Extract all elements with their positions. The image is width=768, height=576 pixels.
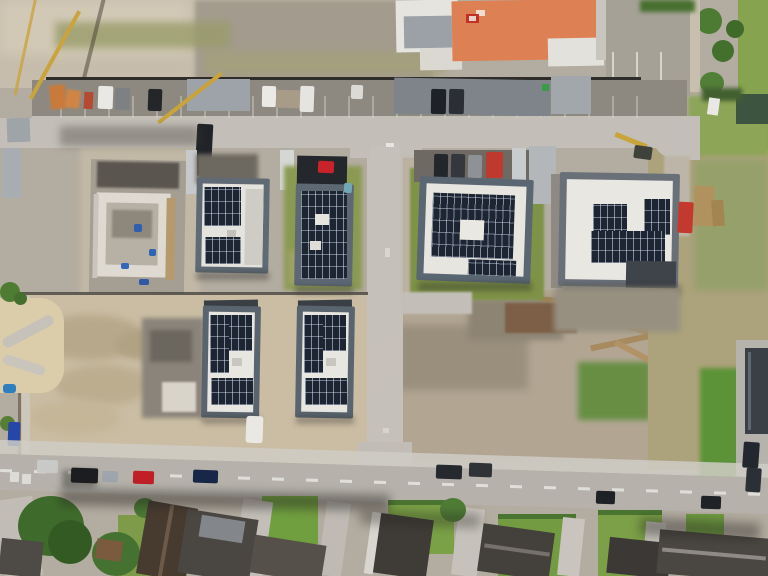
road-mark-2	[385, 248, 390, 257]
playground-equipment-blue	[3, 384, 16, 393]
road-top-curb	[32, 116, 687, 118]
dark-car-driving-1	[596, 491, 615, 505]
road-vertical	[367, 146, 403, 468]
container-hall	[551, 76, 591, 114]
road-junction-left	[350, 140, 370, 158]
sand-mound-2	[55, 365, 150, 405]
teal-car-small	[344, 183, 352, 193]
crosswalk-mark-1	[10, 472, 19, 482]
hedge-ne	[640, 0, 695, 12]
tree-right-2	[712, 40, 734, 62]
red-car-street	[133, 471, 154, 485]
white-roof-solar-2	[644, 199, 670, 235]
red-trailer	[677, 202, 694, 234]
blue-barrel-4	[139, 279, 149, 285]
dark-building-ridge	[748, 352, 751, 430]
green-sign	[542, 84, 549, 91]
flatbed-truck	[276, 90, 301, 109]
container-row-left-a	[2, 148, 21, 198]
silverblue-car-street	[102, 471, 118, 483]
tree-right-4	[726, 20, 744, 38]
blue-barrel-2	[149, 249, 156, 256]
white-van-2	[262, 86, 276, 107]
dark-car-right-edge-2	[745, 468, 762, 493]
black-car-2	[431, 89, 446, 114]
solar-house-2-array	[301, 191, 347, 279]
black-car-1	[148, 89, 163, 111]
parked-car-dark-1	[434, 154, 448, 178]
solar-house-1-array-a	[204, 187, 241, 226]
weed-strip-1	[55, 22, 230, 48]
white-car-2	[351, 85, 363, 99]
construction-interior-dark	[112, 210, 152, 239]
dark-car-street-2	[469, 463, 492, 478]
twin-house-a-solar-col	[210, 315, 229, 373]
twin-house-a-hvac	[232, 358, 242, 366]
parked-van-red	[486, 152, 503, 178]
parked-car-dark-2	[451, 154, 465, 178]
weed-patch-br	[578, 362, 650, 420]
lumber-stack	[165, 198, 175, 280]
dark-car-driving-2	[701, 496, 721, 510]
big-solar-house-shadow	[418, 282, 532, 291]
black-car-3	[449, 89, 464, 114]
drive-mid-right	[402, 292, 472, 314]
timber-pile-2	[711, 200, 725, 227]
big-solar-array-low	[468, 259, 517, 277]
white-roof-solar-3	[591, 231, 665, 263]
twin-house-b-hvac	[326, 358, 336, 366]
dark-car-street-1	[436, 465, 462, 480]
rubble-pile-dark	[150, 330, 192, 362]
twin-house-b-solar-low	[305, 378, 347, 405]
dark-car-right-edge-1	[742, 441, 760, 468]
lot-wall-top	[18, 292, 368, 295]
red-car-carport	[318, 161, 334, 174]
weed-strip-2	[205, 52, 445, 74]
carport-row-2	[394, 78, 551, 117]
orange-equipment-2	[65, 89, 81, 109]
solar-house-1-hvac	[227, 230, 236, 237]
darkblue-car-street	[193, 470, 218, 484]
gray-car-1	[115, 88, 131, 111]
white-van-3	[300, 86, 315, 112]
red-equipment	[84, 92, 94, 109]
solar-house-2-roofpatch-1	[315, 214, 329, 225]
white-sack-pile	[162, 382, 196, 412]
crosswalk-mark-2	[22, 474, 31, 484]
white-van-1	[98, 86, 114, 110]
twin-house-a-solar-low	[211, 378, 253, 405]
gravel-south-b5	[554, 288, 680, 332]
road-mark-1	[386, 143, 394, 147]
bush-playground-2	[14, 292, 27, 305]
big-solar-roof-center	[460, 220, 485, 241]
sand-mound-4	[30, 400, 120, 435]
twin-house-b-shadow	[296, 416, 354, 424]
construction-top-dark	[97, 161, 179, 188]
hedge-garden-3	[598, 510, 662, 515]
garden-shed-brown	[95, 538, 124, 561]
excavator-body	[633, 145, 653, 160]
crane-shadow-on-road	[60, 126, 200, 146]
big-tree-1b	[48, 520, 92, 564]
hall-roof-panels	[404, 16, 453, 49]
white-van-twin-houses	[246, 416, 264, 444]
logo-sign-center	[469, 16, 476, 21]
solar-house-2-roofpatch-2	[310, 241, 321, 250]
blue-barrel-1	[134, 224, 142, 232]
parked-car-gray	[468, 155, 482, 178]
silver-car-street	[37, 460, 58, 474]
blue-barrel-3	[121, 263, 129, 269]
container-row-left-b	[7, 118, 31, 143]
solar-house-1-roof-east	[244, 189, 263, 265]
white-van-ne	[707, 97, 720, 115]
black-car-street	[71, 468, 99, 484]
solar-house-1-shadow	[196, 272, 269, 280]
twin-house-b-solar-col	[304, 315, 323, 373]
house-corner-left	[0, 538, 44, 576]
solar-house-1-array-b	[205, 237, 241, 264]
aerial-photo	[0, 0, 768, 576]
road-mark-3	[383, 428, 389, 433]
